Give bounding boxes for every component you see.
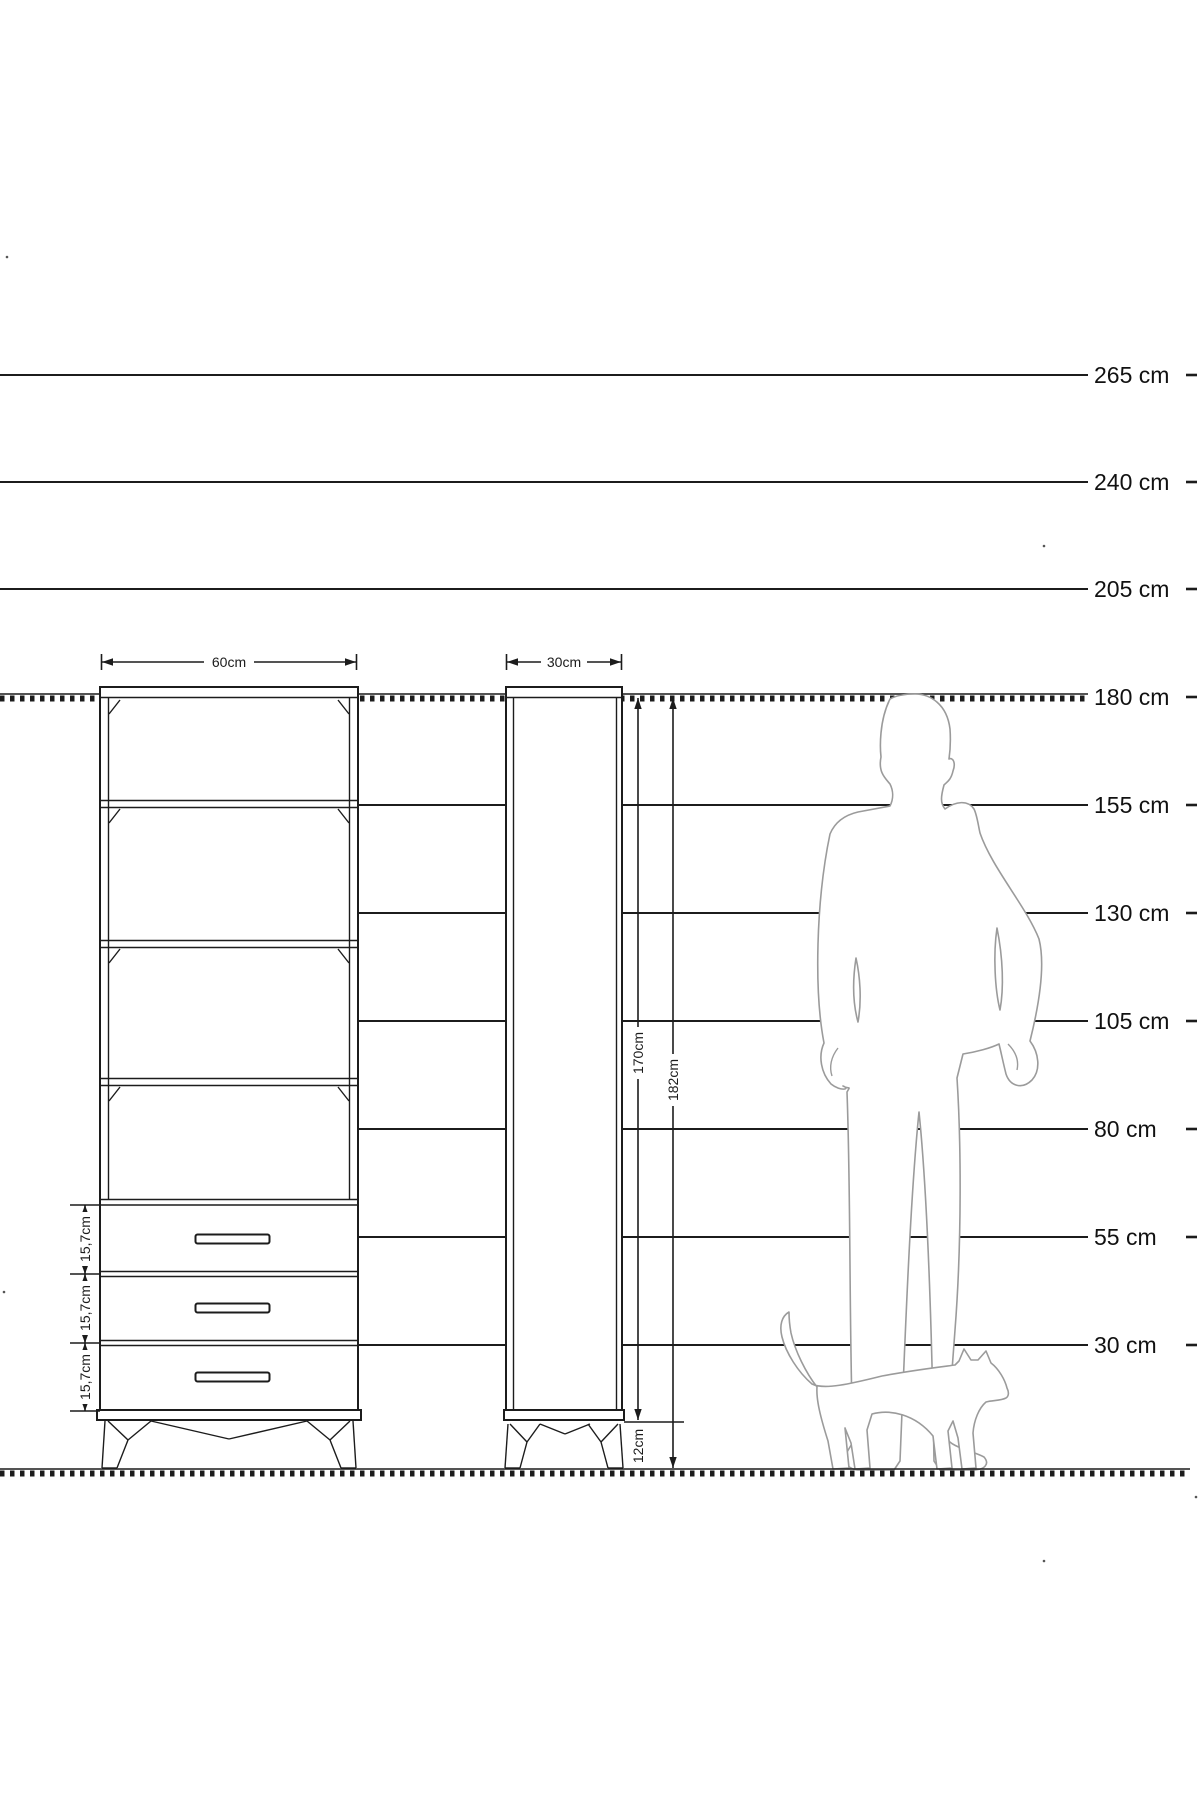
cabinet-front-view [97,687,361,1468]
person-silhouette [818,694,1042,1470]
scale-label-265: 265 cm [1094,362,1169,388]
drawer-handle-3 [196,1373,270,1382]
ground-hatch-line [0,1469,1190,1474]
scale-label-240: 240 cm [1094,469,1169,495]
body-height-label: 170cm [630,1032,646,1074]
dimension-side-depth: 30cm [507,654,622,670]
side-plinth [504,1410,624,1420]
front-legs [102,1421,356,1468]
dimension-heights: 170cm 182cm 12cm [624,698,684,1468]
cabinet-side-view [504,687,624,1468]
drawer-handle-2 [196,1304,270,1313]
scale-label-180: 180 cm [1094,684,1169,710]
leg-height-label: 12cm [630,1429,646,1463]
scale-label-130: 130 cm [1094,900,1169,926]
front-width-label: 60cm [212,654,246,670]
scale-label-205: 205 cm [1094,576,1169,602]
drawer-height-label-3: 15,7cm [77,1354,93,1400]
side-legs [505,1424,623,1468]
scale-label-155: 155 cm [1094,792,1169,818]
drawer-handle-1 [196,1235,270,1244]
drawer-height-label-1: 15,7cm [77,1216,93,1262]
dimension-front-width: 60cm [102,654,357,670]
furniture-dimension-diagram: 265 cm 240 cm 205 cm 180 cm 155 cm 130 c… [0,0,1200,1800]
drawer-height-label-2: 15,7cm [77,1285,93,1331]
front-plinth [97,1410,361,1420]
scale-right-ticks [1186,375,1197,1345]
scale-label-105: 105 cm [1094,1008,1169,1034]
scale-label-55: 55 cm [1094,1224,1157,1250]
scale-label-30: 30 cm [1094,1332,1157,1358]
diagram-canvas: 265 cm 240 cm 205 cm 180 cm 155 cm 130 c… [0,0,1200,1800]
dimension-drawer-heights: 15,7cm 15,7cm 15,7cm [70,1205,100,1411]
total-height-label: 182cm [665,1059,681,1101]
side-depth-label: 30cm [547,654,581,670]
person-outline [818,694,1042,1470]
scale-label-80: 80 cm [1094,1116,1157,1142]
